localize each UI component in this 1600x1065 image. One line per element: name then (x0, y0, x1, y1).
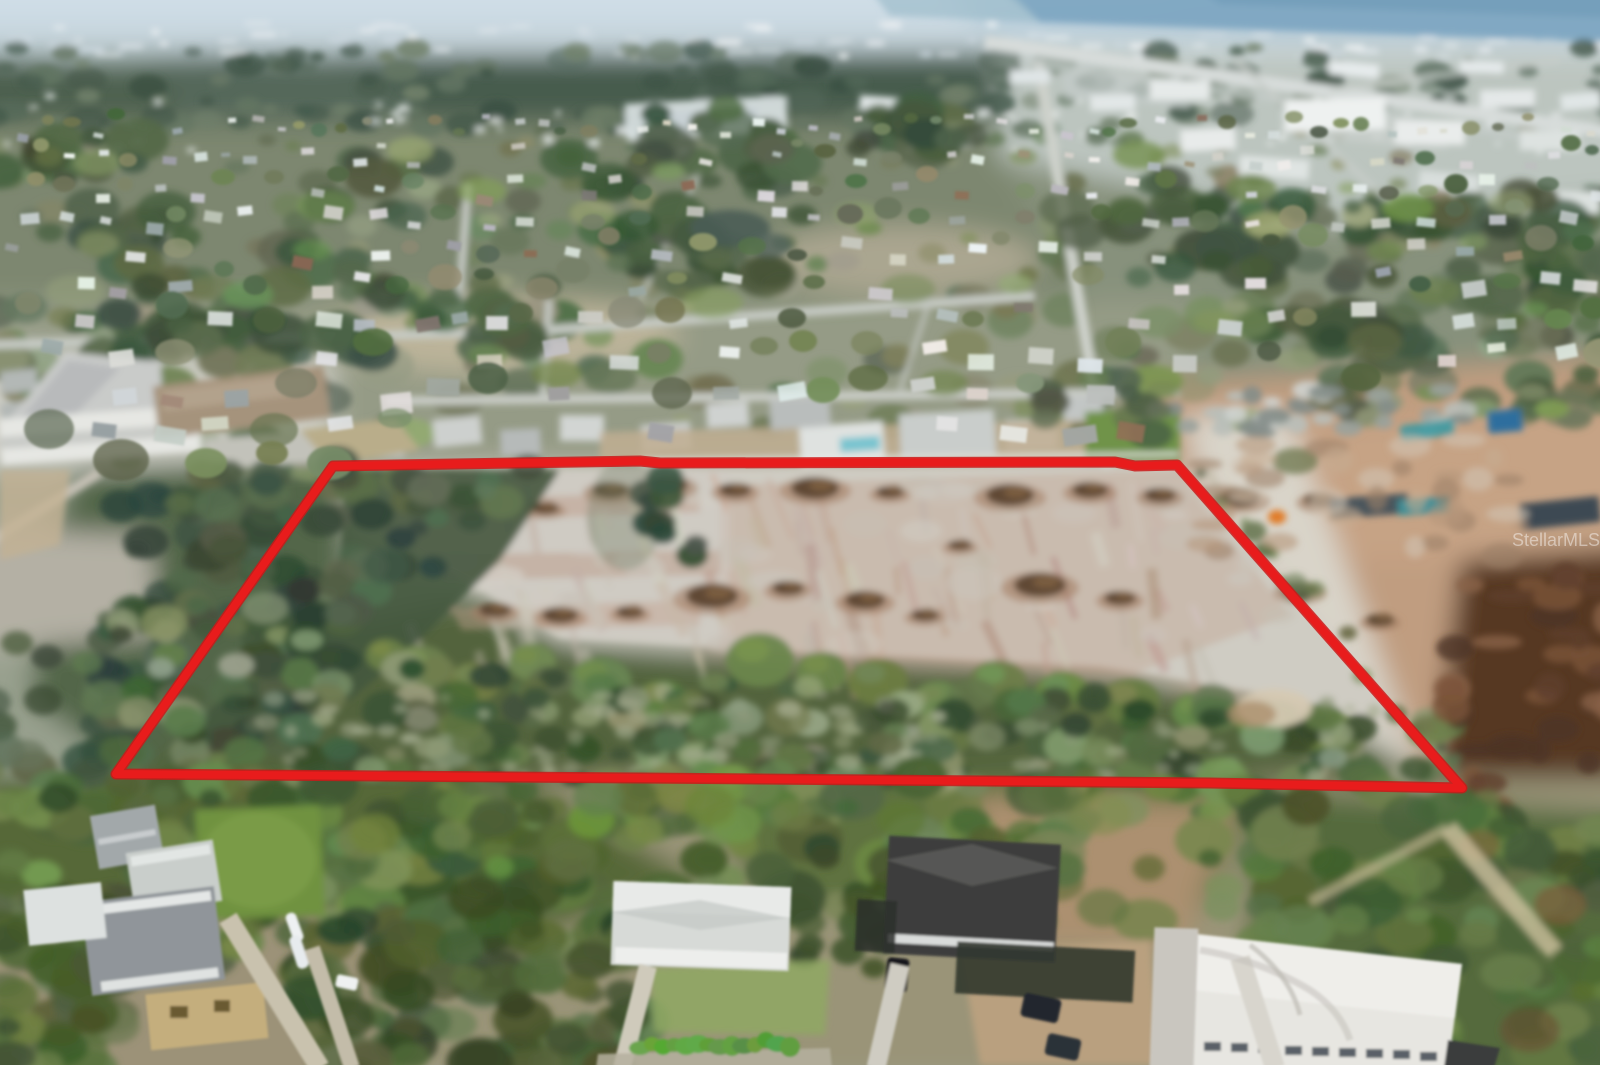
svg-text:StellarMLS: StellarMLS (1512, 530, 1600, 550)
